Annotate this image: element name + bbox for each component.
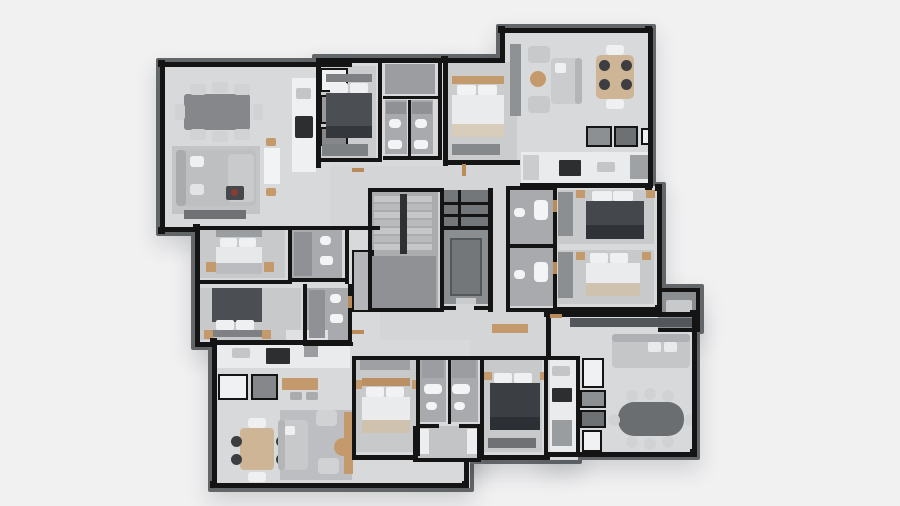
door-leaf [352,330,364,334]
door-leaf [352,168,364,172]
layer-doors [0,0,900,506]
door-leaf [553,200,557,212]
door-leaf [550,314,562,318]
floor-plan-image [0,0,900,506]
door-leaf [553,262,557,274]
door-leaf [462,164,466,176]
door-leaf [348,296,352,308]
